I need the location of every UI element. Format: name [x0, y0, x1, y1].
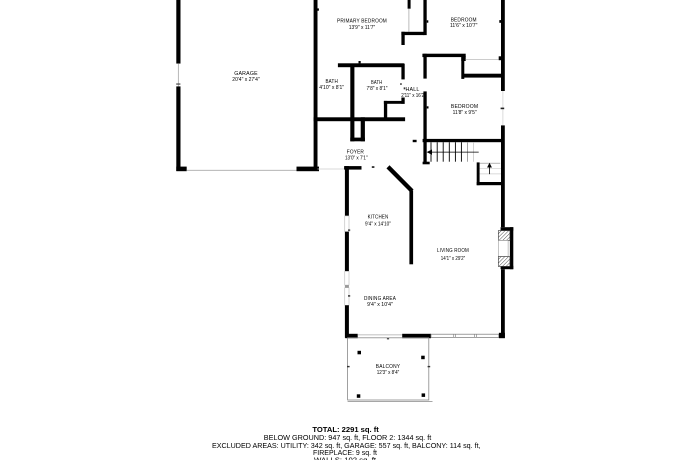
svg-text:11'6" x 10'7": 11'6" x 10'7" — [450, 23, 478, 29]
svg-text:4'10" x 8'1": 4'10" x 8'1" — [319, 85, 344, 91]
svg-text:12'3" x 8'4": 12'3" x 8'4" — [377, 370, 400, 376]
svg-text:7'8" x 8'1": 7'8" x 8'1" — [367, 86, 388, 92]
svg-text:9'4" x 10'4": 9'4" x 10'4" — [367, 302, 393, 308]
svg-text:LIVING ROOM: LIVING ROOM — [437, 248, 469, 254]
svg-text:2'11" x 16'2": 2'11" x 16'2" — [401, 93, 426, 99]
svg-text:FIREPLACE: 9 sq. ft: FIREPLACE: 9 sq. ft — [313, 450, 377, 457]
svg-text:13'9" x 11'7": 13'9" x 11'7" — [349, 25, 376, 31]
svg-text:11'8" x 9'5": 11'8" x 9'5" — [453, 110, 477, 116]
svg-text:TOTAL: 2291 sq. ft: TOTAL: 2291 sq. ft — [312, 426, 379, 434]
svg-text:14'1" x 29'2": 14'1" x 29'2" — [441, 256, 466, 262]
svg-text:13'0" x 7'1": 13'0" x 7'1" — [345, 155, 368, 161]
svg-text:EXCLUDED AREAS: UTILITY: 342 s: EXCLUDED AREAS: UTILITY: 342 sq. ft, GAR… — [212, 443, 481, 450]
svg-text:KITCHEN: KITCHEN — [368, 215, 389, 221]
svg-text:9'4" x 14'10": 9'4" x 14'10" — [365, 222, 391, 228]
svg-text:GARAGE: GARAGE — [234, 71, 258, 77]
svg-text:20'4" x 27'4": 20'4" x 27'4" — [232, 77, 260, 83]
svg-text:BELOW GROUND: 947 sq. ft, FLOO: BELOW GROUND: 947 sq. ft, FLOOR 2: 1344 … — [264, 435, 432, 442]
svg-text:BATH: BATH — [326, 79, 338, 85]
svg-text:PRIMARY BEDROOM: PRIMARY BEDROOM — [337, 19, 387, 25]
